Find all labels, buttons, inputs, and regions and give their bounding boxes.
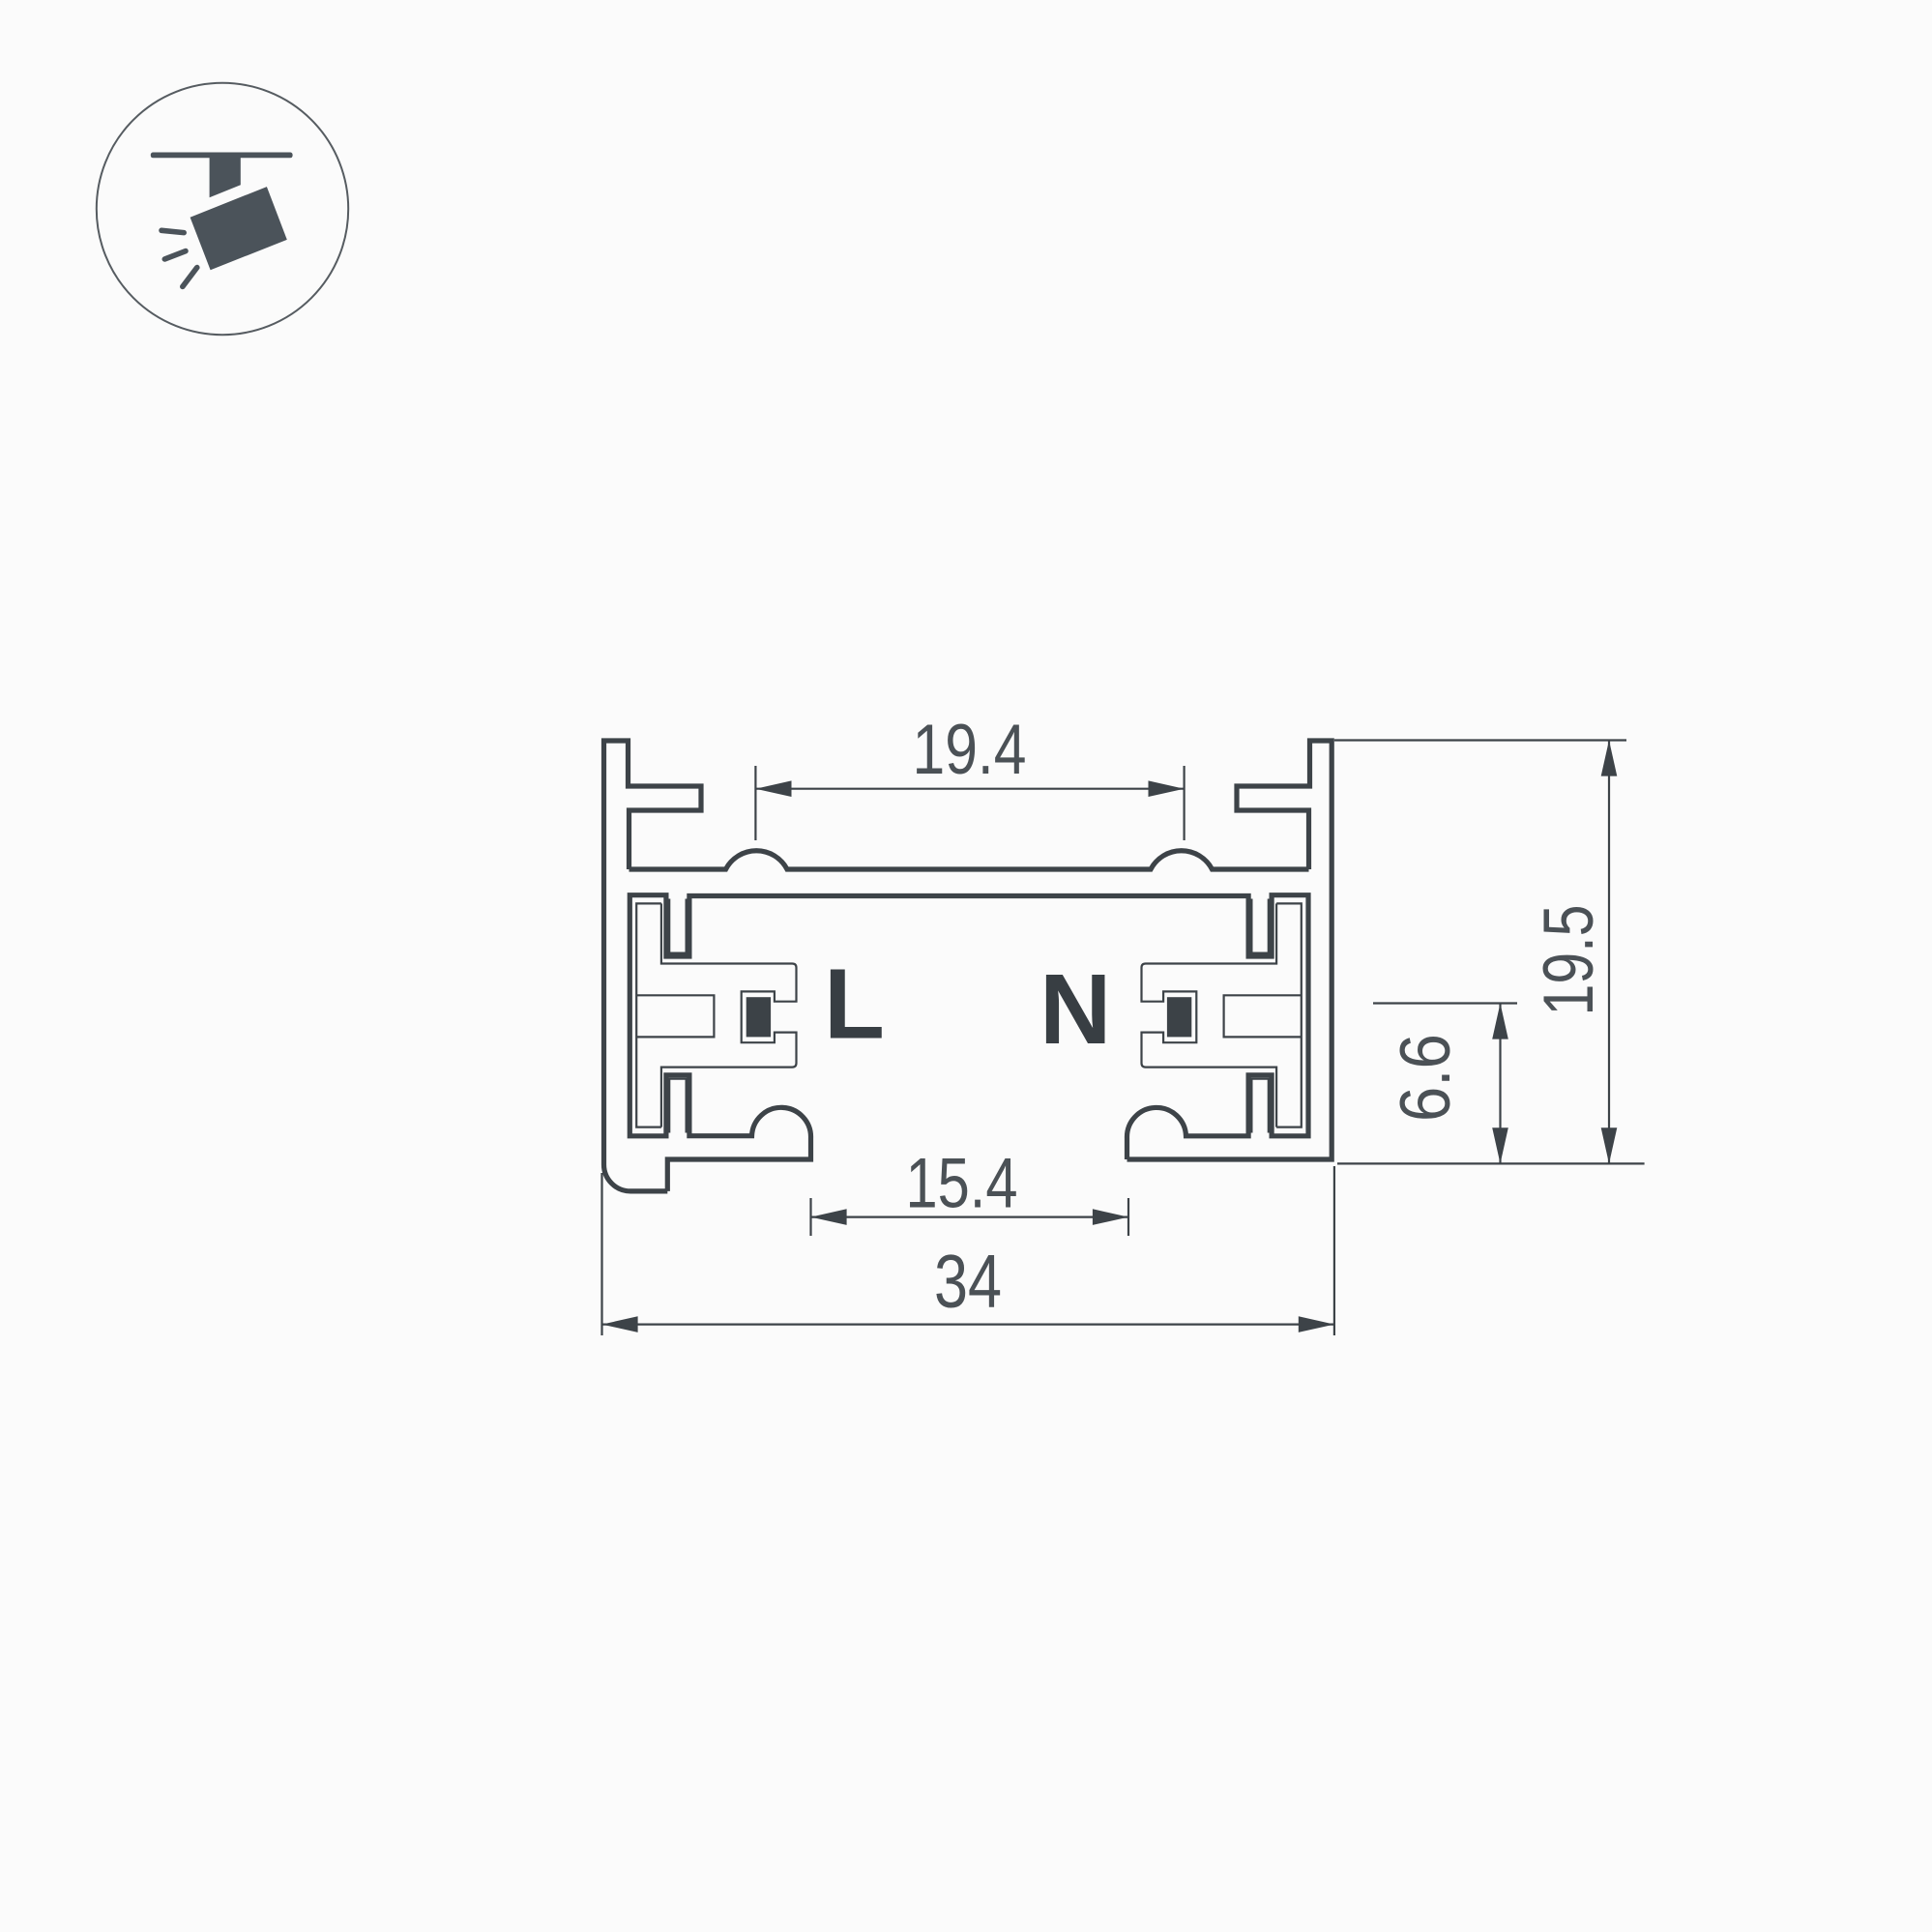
svg-text:15.4: 15.4 bbox=[906, 1144, 1018, 1222]
svg-text:6.6: 6.6 bbox=[1387, 1034, 1465, 1122]
svg-text:19.5: 19.5 bbox=[1530, 905, 1608, 1016]
svg-text:34: 34 bbox=[934, 1238, 1002, 1323]
svg-text:N: N bbox=[1039, 953, 1111, 1065]
svg-text:L: L bbox=[824, 949, 885, 1060]
svg-text:19.4: 19.4 bbox=[913, 711, 1027, 789]
